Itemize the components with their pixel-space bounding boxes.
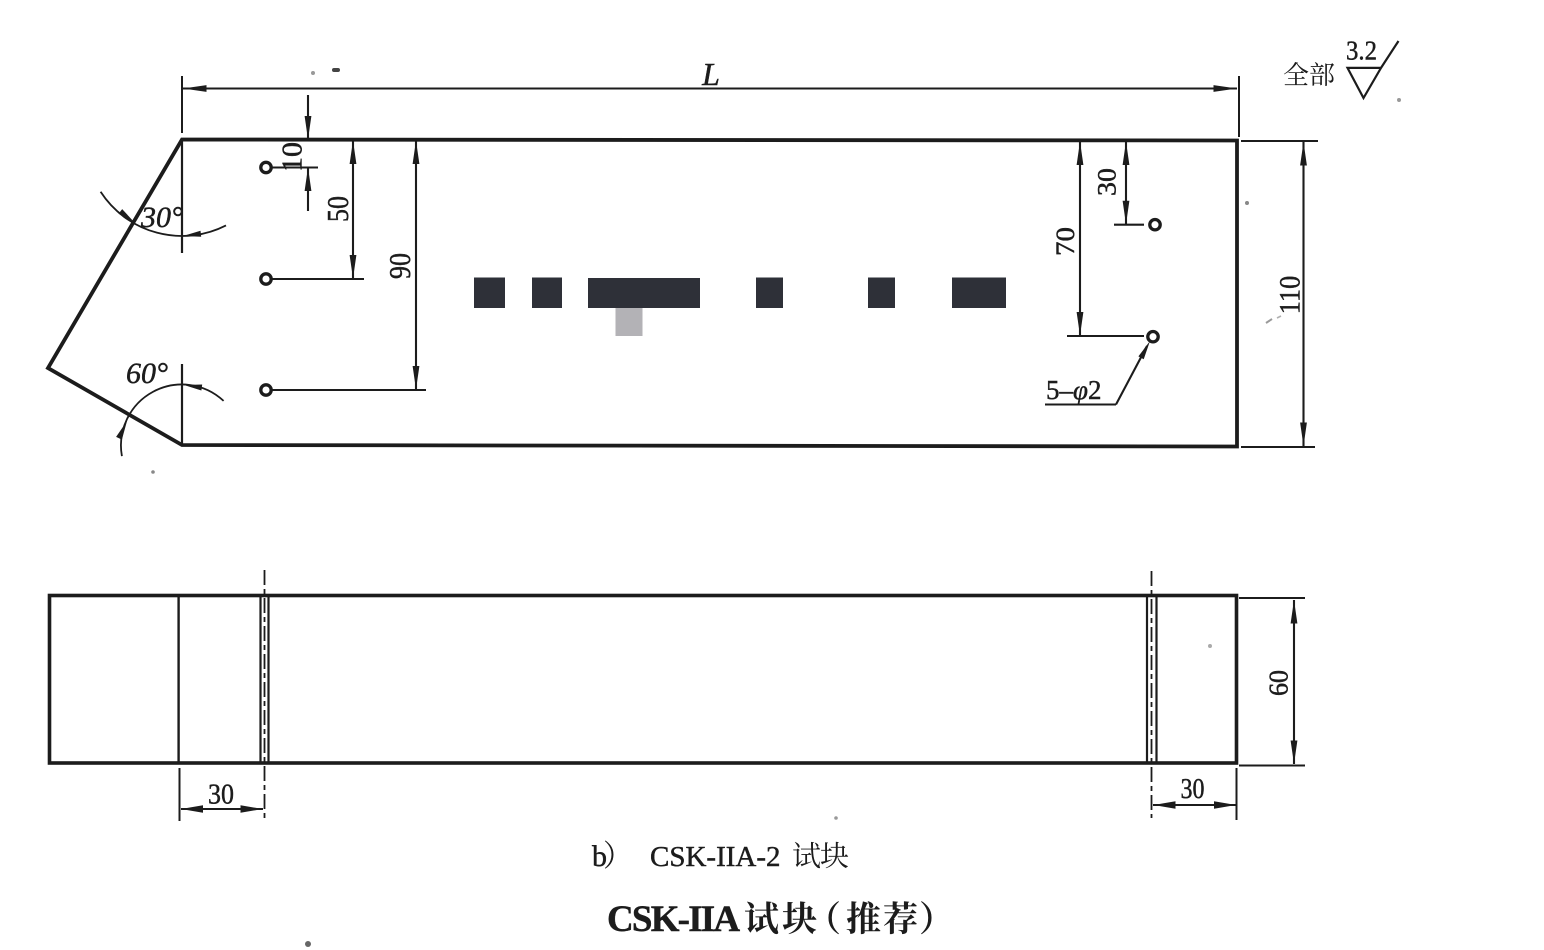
svg-text:30: 30 <box>1181 774 1205 805</box>
svg-text:60: 60 <box>1264 670 1294 696</box>
svg-text:110: 110 <box>1274 276 1307 315</box>
svg-text:50: 50 <box>320 196 355 222</box>
svg-text:CSK-IIA-2: CSK-IIA-2 <box>650 841 781 873</box>
svg-text:b: b <box>592 840 607 873</box>
svg-text:L: L <box>701 56 720 92</box>
svg-text:30: 30 <box>1093 168 1122 196</box>
svg-text:30: 30 <box>208 779 234 811</box>
svg-text:3.2: 3.2 <box>1346 36 1377 66</box>
svg-text:CSK-IIA: CSK-IIA <box>607 899 740 940</box>
svg-text:10: 10 <box>277 142 309 172</box>
svg-text:60°: 60° <box>126 357 168 390</box>
svg-text:30°: 30° <box>140 201 183 234</box>
svg-text:5–φ2: 5–φ2 <box>1046 375 1101 405</box>
svg-text:70: 70 <box>1050 227 1080 256</box>
svg-text:90: 90 <box>382 253 417 279</box>
